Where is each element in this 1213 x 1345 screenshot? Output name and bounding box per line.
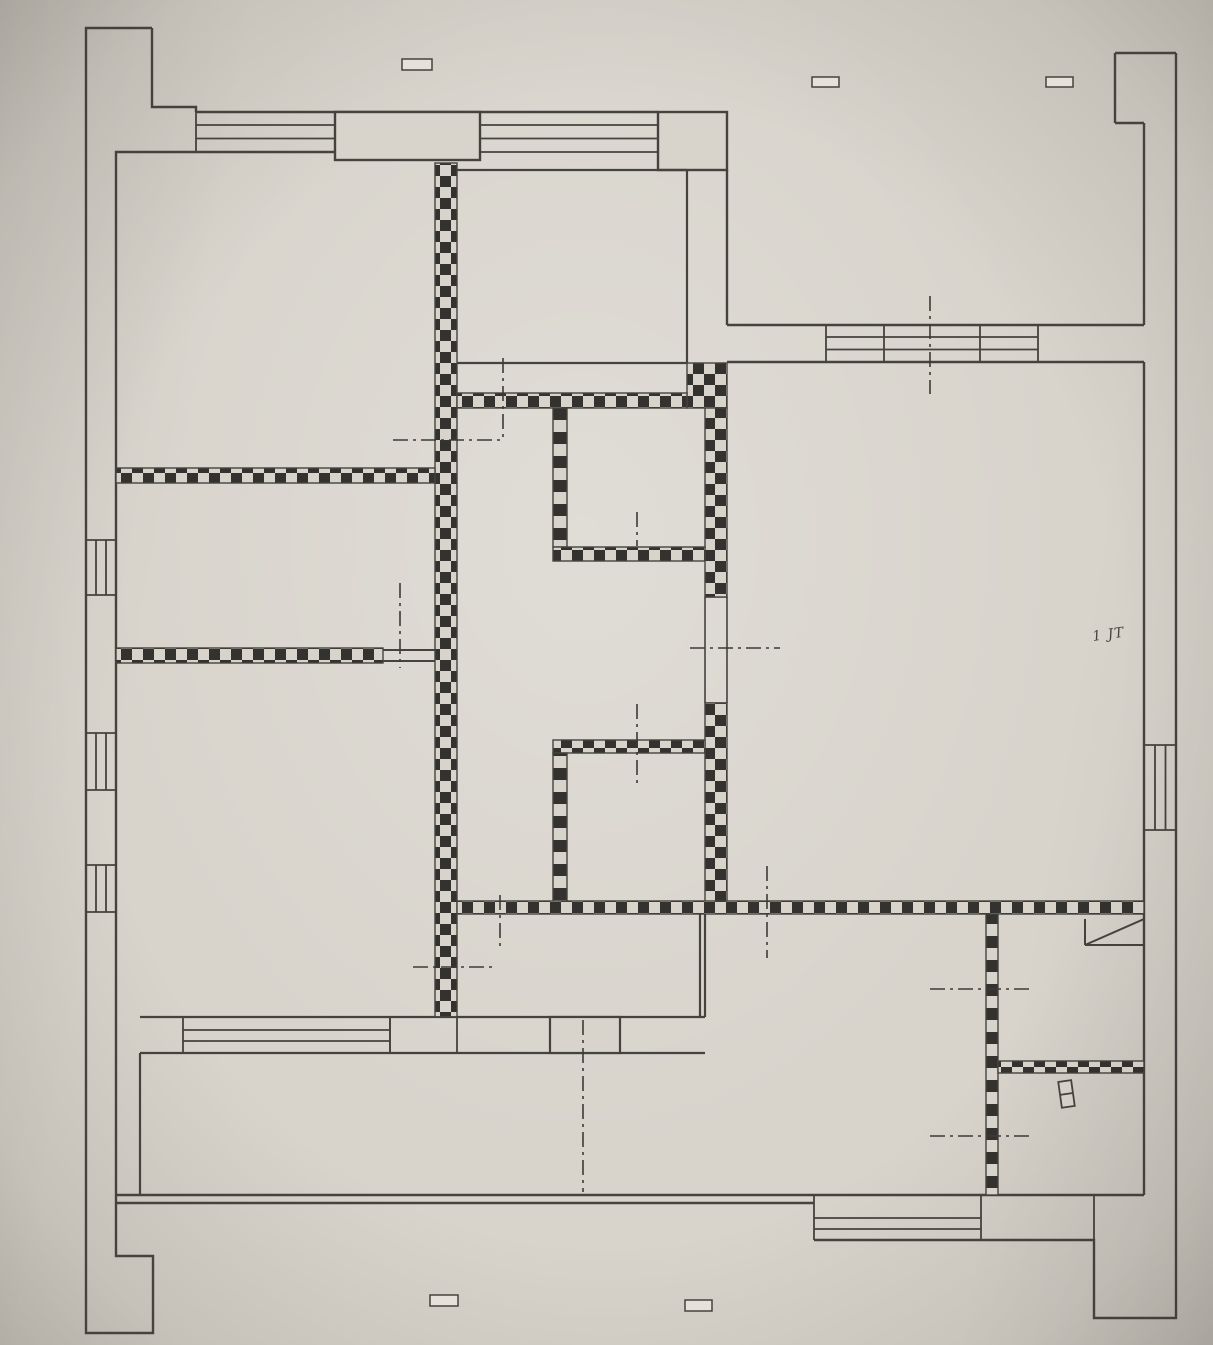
lower-sill-stub-pier	[550, 1017, 620, 1053]
corridor-right-edge	[700, 913, 705, 1017]
left-horizontal-checkered-wall-lower	[116, 648, 383, 663]
door-leaf-icon	[1058, 1080, 1074, 1108]
checkered-wall-left-vertical	[435, 163, 457, 1017]
window-lower-h-pier	[390, 1017, 457, 1053]
duct-shaft-icon	[1085, 919, 1144, 945]
left-lower-wall-thin-extension	[383, 650, 435, 661]
top-wall-pier-b	[658, 112, 727, 170]
window-topright-c	[826, 325, 1038, 362]
floorplan-drawing: 1 JT	[0, 0, 1213, 1345]
bath-b-top-wall	[553, 740, 705, 753]
tape-marker-top-left	[402, 59, 432, 70]
tape-marker-bottom-center	[685, 1300, 712, 1311]
long-horizontal-checkered-wall	[457, 901, 1144, 914]
checkered-wall-right-upper	[705, 408, 727, 597]
handwritten-annotation: 1 JT	[1091, 625, 1126, 645]
floorplan-photo: 1 JT	[0, 0, 1213, 1345]
window-left-e	[86, 540, 116, 595]
window-right-d	[1144, 745, 1176, 830]
checkered-wall-right-top-block	[687, 363, 727, 408]
bath-a-top-wall	[457, 393, 687, 408]
tape-marker-top-right	[1046, 77, 1073, 87]
checkered-wall-right-lower	[705, 703, 727, 907]
bath-a-bottom-wall	[553, 547, 705, 561]
top-right-block	[1115, 53, 1176, 123]
window-left-f	[86, 733, 116, 790]
bath-a-left-wall	[553, 408, 567, 547]
tape-marker-top-center	[812, 77, 839, 87]
symbols	[402, 59, 1144, 1311]
window-top-a	[196, 112, 335, 152]
window-top-b	[480, 112, 658, 152]
window-lower-h	[183, 1017, 390, 1053]
top-left-pillar-step	[152, 28, 196, 112]
exterior-walls	[86, 28, 1176, 1333]
left-horizontal-checkered-wall-upper	[116, 468, 435, 483]
bath-b-left-wall	[553, 753, 567, 901]
door-gap-jambs	[705, 597, 727, 703]
window-left-g	[86, 865, 116, 912]
bottom-right-thin-checkered-wall	[986, 914, 998, 1195]
tape-marker-bottom-left	[430, 1295, 458, 1306]
window-bottom-main	[814, 1195, 1094, 1240]
bottom-right-horizontal-checkered-wall	[998, 1061, 1144, 1073]
top-wall-pier-a	[335, 112, 480, 160]
tape-markers	[402, 59, 1073, 1311]
left-wall-outer-and-foot	[86, 28, 335, 1333]
